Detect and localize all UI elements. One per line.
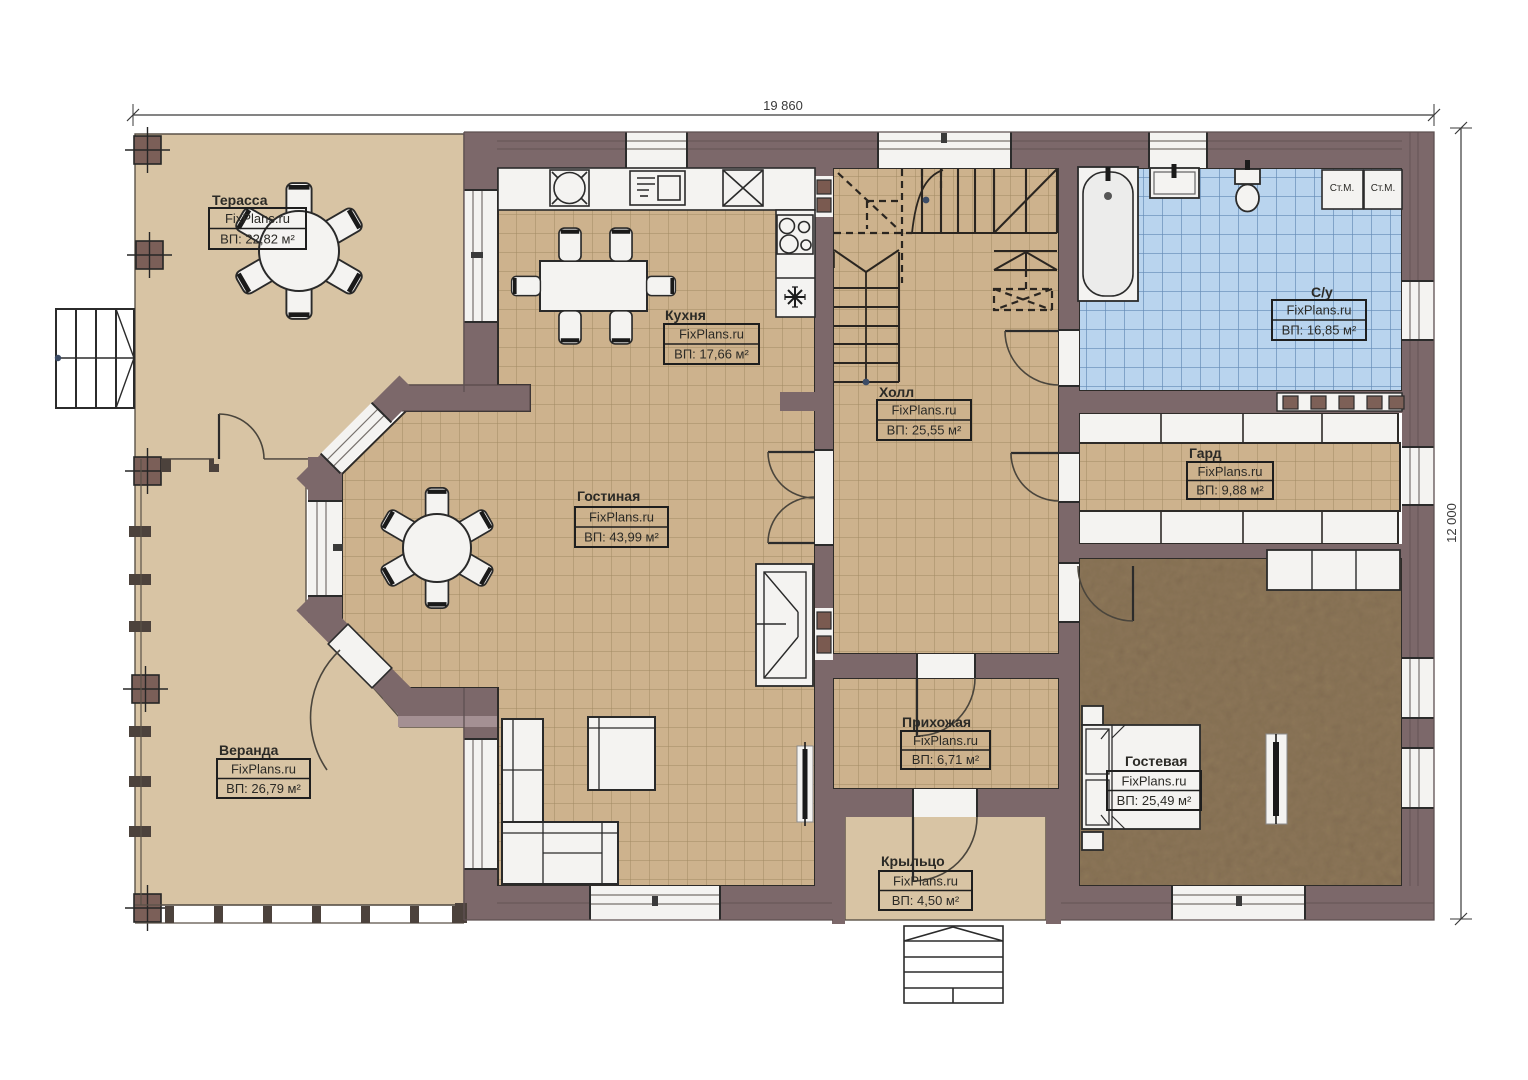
svg-text:FixPlans.ru: FixPlans.ru bbox=[1197, 464, 1262, 479]
svg-text:Ст.М.: Ст.М. bbox=[1330, 183, 1355, 194]
svg-text:Холл: Холл bbox=[879, 384, 914, 400]
svg-text:С/у: С/у bbox=[1311, 284, 1333, 300]
svg-text:ВП: 25,55 м²: ВП: 25,55 м² bbox=[887, 423, 962, 438]
svg-text:Ст.М.: Ст.М. bbox=[1371, 183, 1396, 194]
svg-text:FixPlans.ru: FixPlans.ru bbox=[679, 327, 744, 342]
svg-text:ВП: 16,85 м²: ВП: 16,85 м² bbox=[1282, 323, 1357, 338]
svg-text:FixPlans.ru: FixPlans.ru bbox=[893, 873, 958, 888]
svg-text:ВП: 6,71 м²: ВП: 6,71 м² bbox=[912, 752, 980, 767]
svg-text:Крыльцо: Крыльцо bbox=[881, 853, 945, 869]
svg-text:FixPlans.ru: FixPlans.ru bbox=[1286, 303, 1351, 318]
svg-text:FixPlans.ru: FixPlans.ru bbox=[913, 733, 978, 748]
svg-text:ВП: 17,66 м²: ВП: 17,66 м² bbox=[674, 347, 749, 362]
svg-text:ВП: 9,88 м²: ВП: 9,88 м² bbox=[1196, 482, 1264, 497]
svg-text:Терасса: Терасса bbox=[212, 192, 268, 208]
svg-text:Веранда: Веранда bbox=[219, 742, 279, 758]
svg-text:Гостевая: Гостевая bbox=[1125, 753, 1187, 769]
svg-text:ВП: 22,82 м²: ВП: 22,82 м² bbox=[220, 231, 295, 246]
svg-text:FixPlans.ru: FixPlans.ru bbox=[589, 510, 654, 525]
svg-text:FixPlans.ru: FixPlans.ru bbox=[225, 211, 290, 226]
svg-text:ВП: 43,99 м²: ВП: 43,99 м² bbox=[584, 530, 659, 545]
svg-text:Гостиная: Гостиная bbox=[577, 488, 640, 504]
svg-text:12 000: 12 000 bbox=[1444, 503, 1459, 543]
svg-text:Кухня: Кухня bbox=[665, 307, 706, 323]
svg-text:Гард: Гард bbox=[1189, 445, 1222, 461]
svg-text:ВП: 26,79 м²: ВП: 26,79 м² bbox=[226, 781, 301, 796]
svg-text:ВП: 4,50 м²: ВП: 4,50 м² bbox=[892, 893, 960, 908]
svg-text:FixPlans.ru: FixPlans.ru bbox=[1121, 773, 1186, 788]
svg-text:FixPlans.ru: FixPlans.ru bbox=[231, 761, 296, 776]
svg-text:FixPlans.ru: FixPlans.ru bbox=[891, 403, 956, 418]
svg-text:Прихожая: Прихожая bbox=[902, 714, 971, 730]
svg-text:19 860: 19 860 bbox=[763, 98, 803, 113]
svg-text:ВП: 25,49 м²: ВП: 25,49 м² bbox=[1117, 793, 1192, 808]
